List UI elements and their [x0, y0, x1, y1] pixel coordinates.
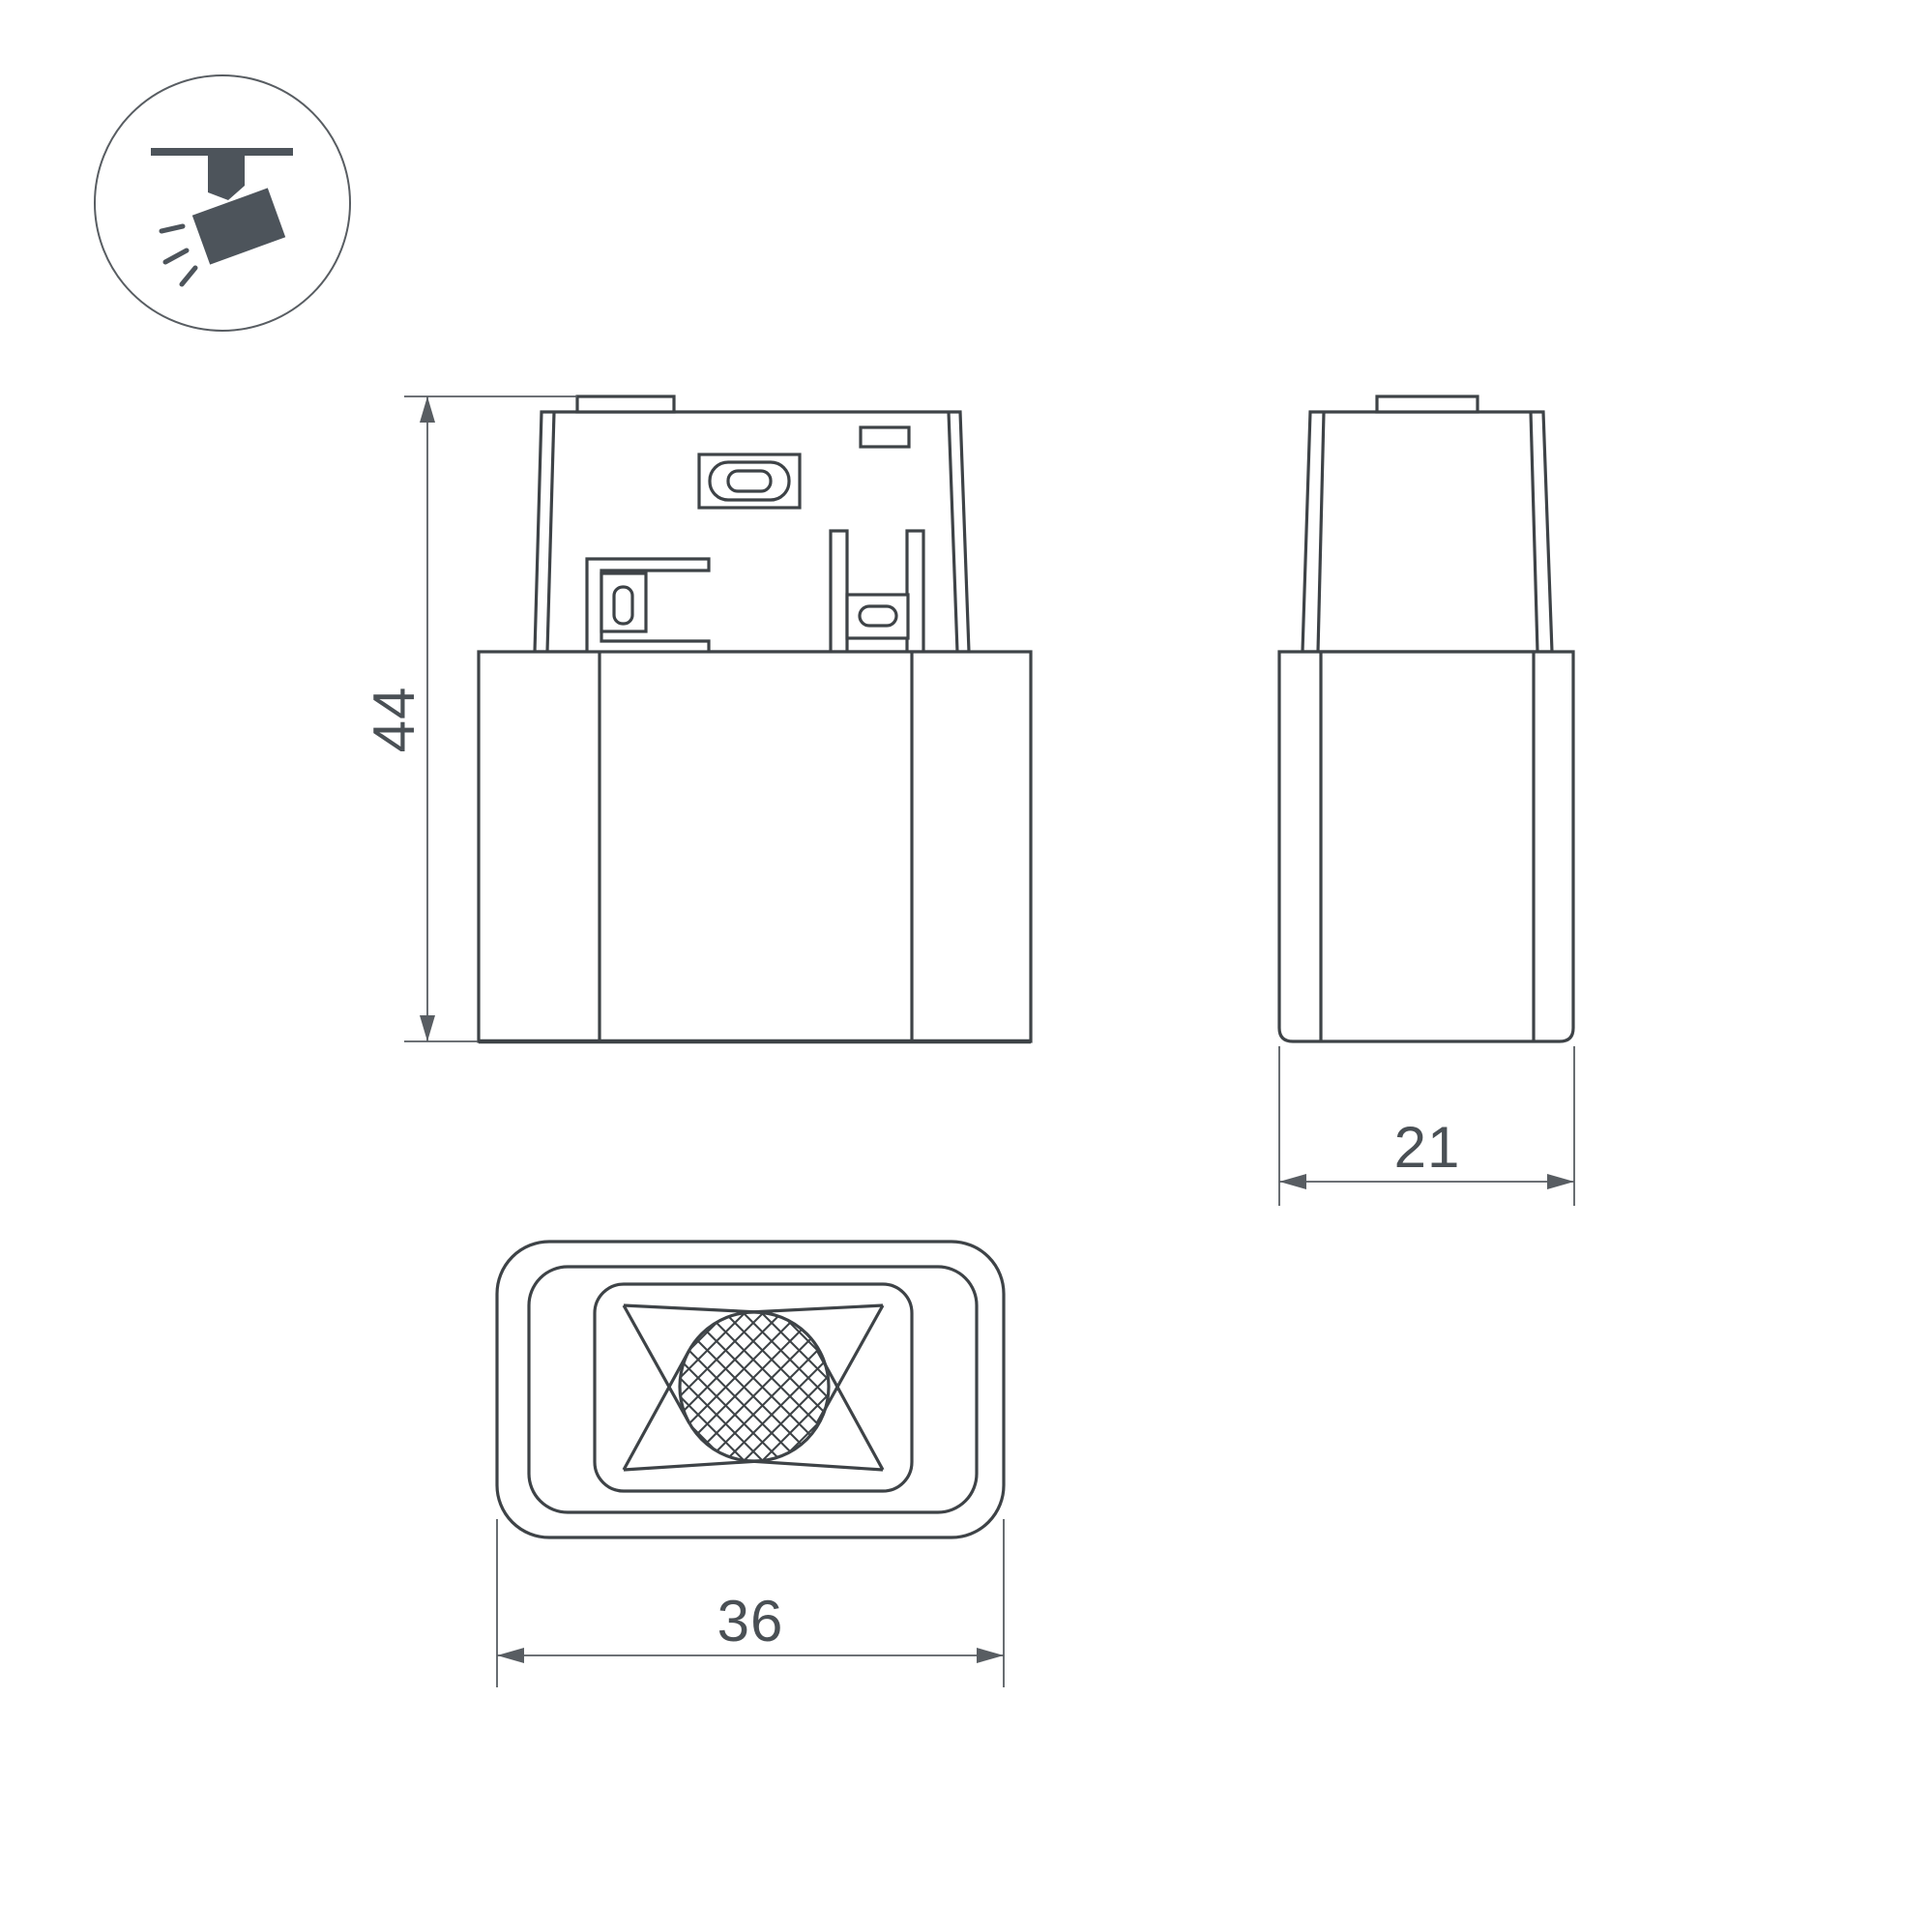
width-dim-label: 36: [717, 1589, 784, 1654]
dimension-width: 36: [497, 1519, 1004, 1687]
track-spotlight-icon: [95, 75, 350, 331]
depth-arrow-left: [1279, 1174, 1306, 1189]
width-arrow-right: [977, 1648, 1004, 1663]
icon-circle-border: [95, 75, 350, 331]
depth-arrow-right: [1547, 1174, 1574, 1189]
front-top-tab: [577, 396, 674, 412]
front-oval-contact: [699, 454, 800, 508]
icon-track-ceiling-bar: [151, 148, 293, 156]
side-top-tab: [1377, 396, 1478, 412]
side-view: [1279, 396, 1573, 1041]
side-body: [1279, 652, 1573, 1041]
height-arrow-down: [420, 1015, 435, 1041]
bottom-view: [497, 1242, 1004, 1537]
bottom-lens-crosshatch: [680, 1312, 829, 1461]
front-view: [479, 396, 1031, 1041]
technical-drawing-sheet: 44 21 36: [0, 0, 1932, 1932]
depth-dim-label: 21: [1394, 1115, 1461, 1180]
front-body: [479, 652, 1031, 1041]
side-connector-outline: [1303, 412, 1552, 652]
height-arrow-up: [420, 396, 435, 423]
height-dim-label: 44: [362, 687, 426, 753]
width-arrow-left: [497, 1648, 524, 1663]
right-clip-slot: [860, 606, 896, 626]
oval-contact-inner: [728, 471, 771, 491]
dimension-depth: 21: [1279, 1046, 1574, 1206]
front-small-slot: [861, 427, 909, 447]
right-clip-left-arm: [831, 531, 847, 652]
left-clip-slot: [614, 587, 632, 624]
